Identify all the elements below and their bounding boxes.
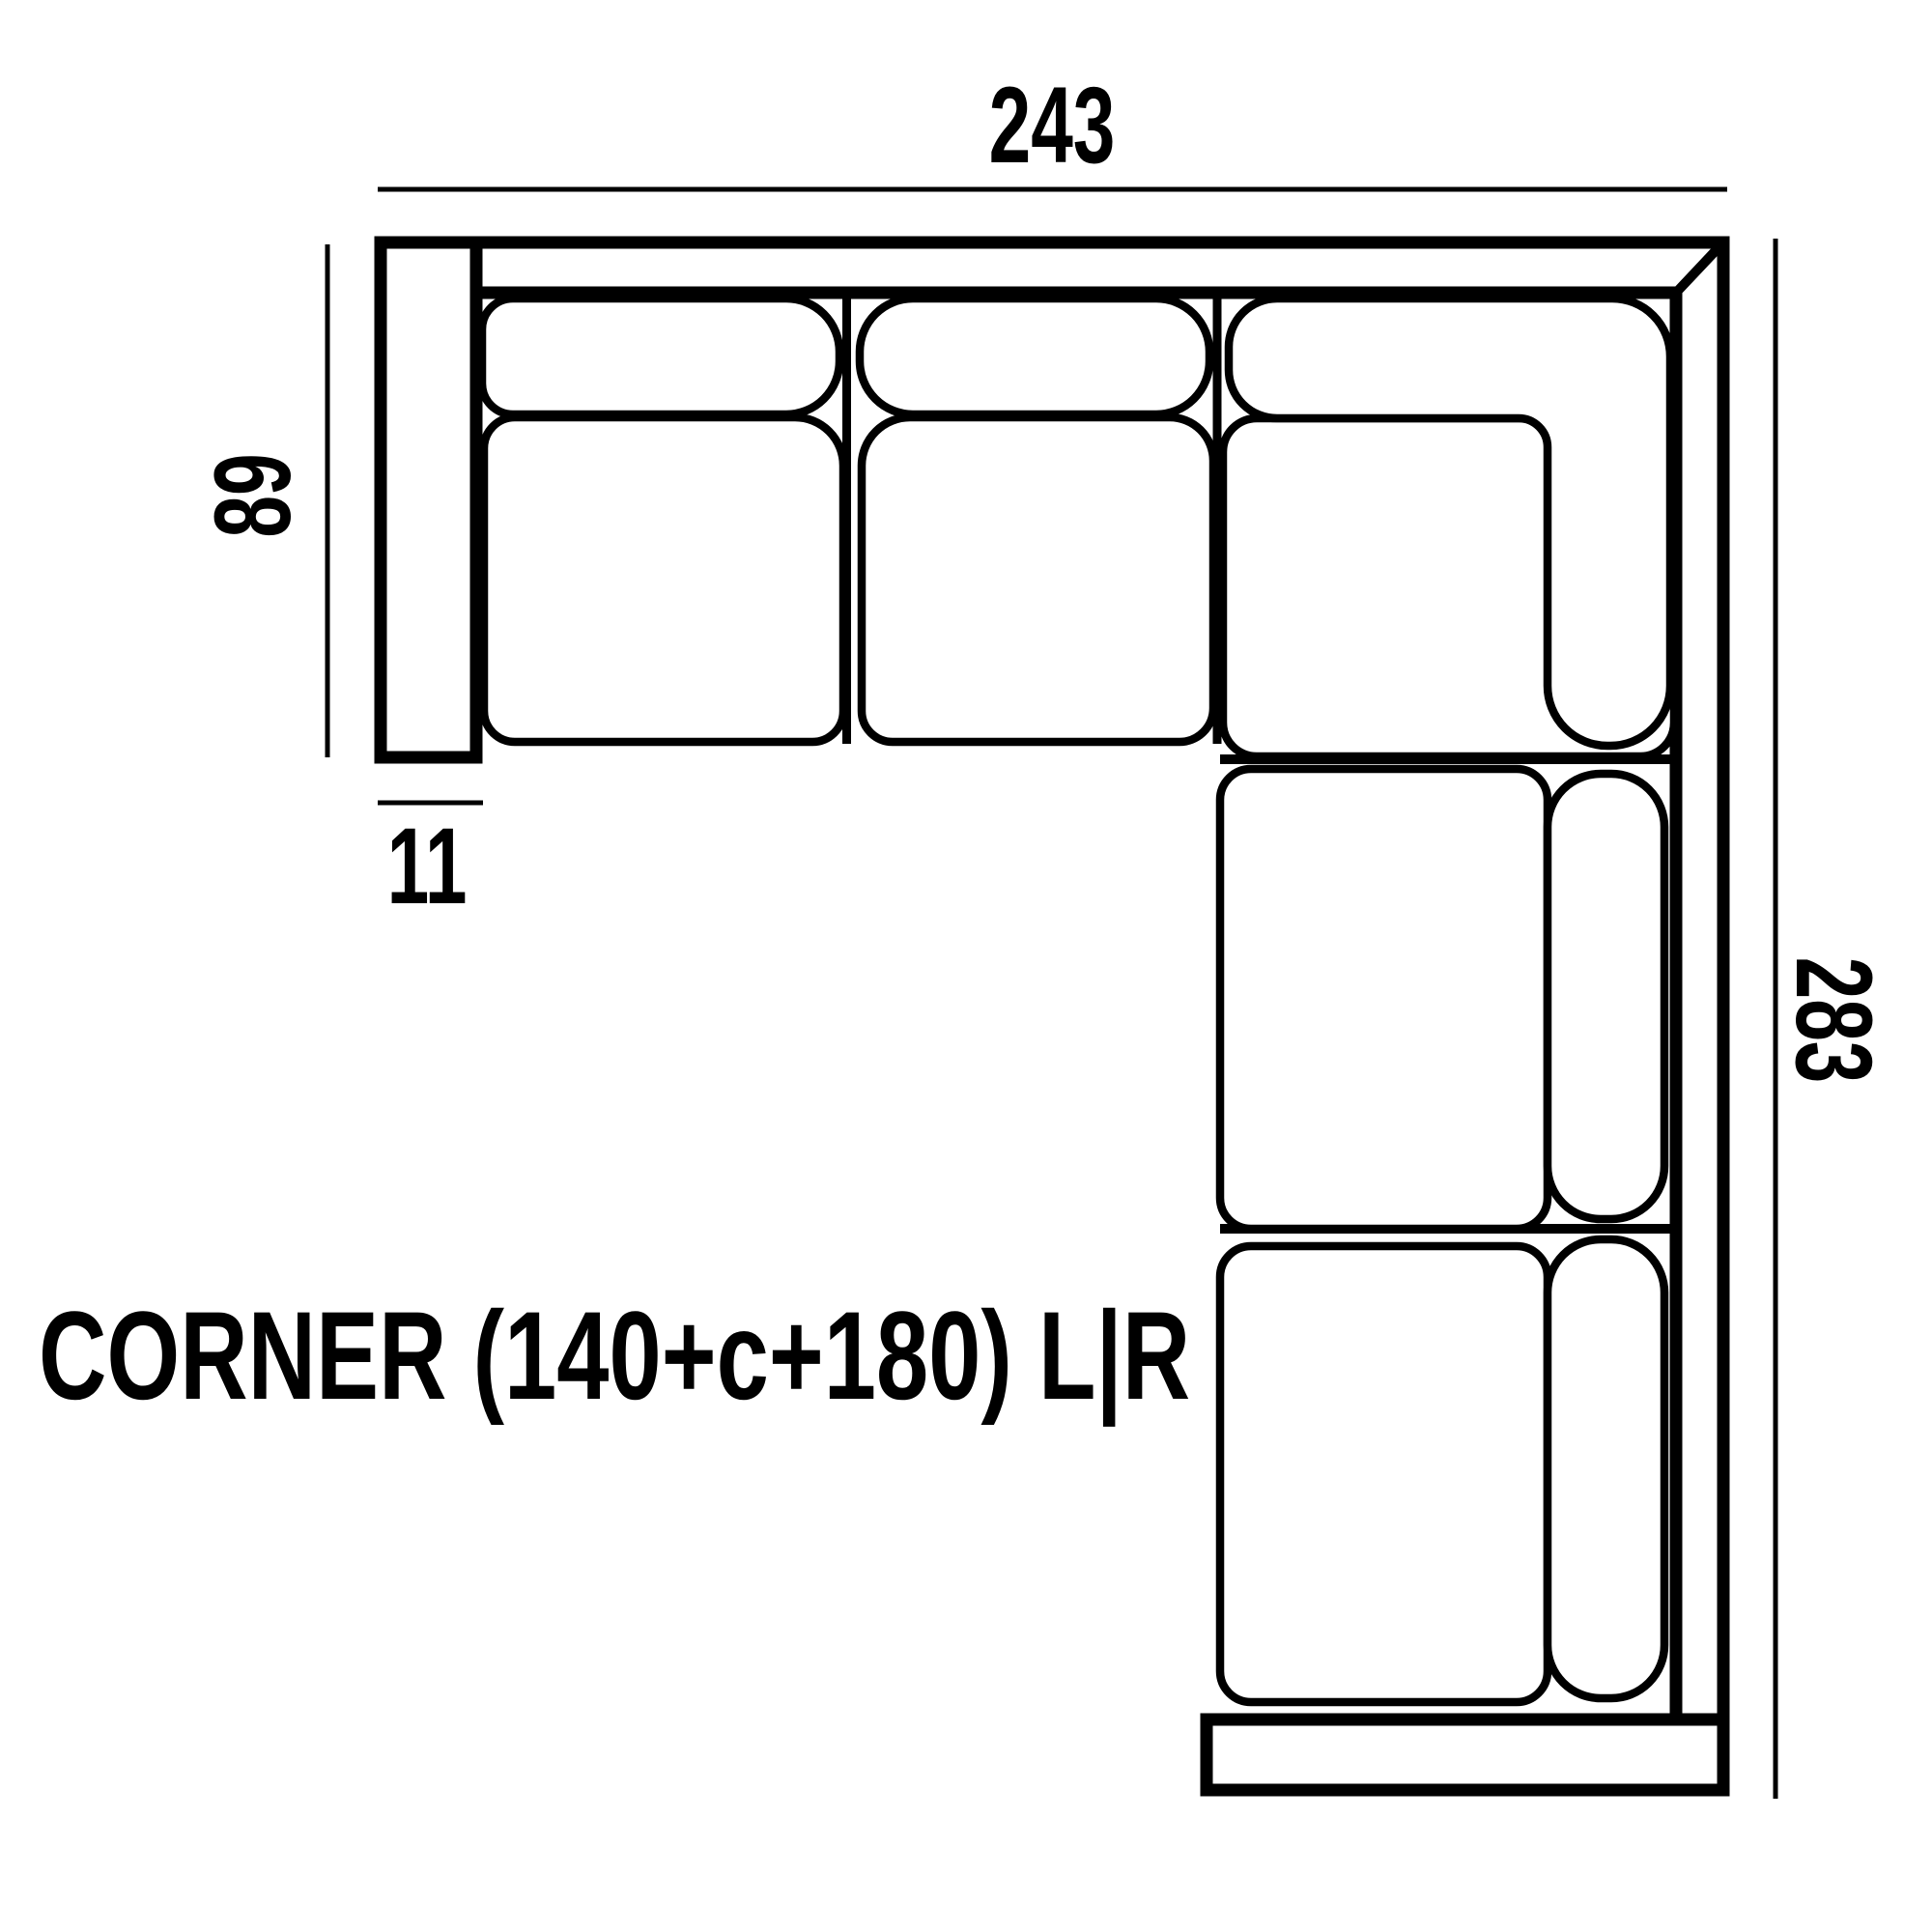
svg-text:283: 283 — [1774, 957, 1894, 1084]
svg-text:CORNER (140+c+180) L|R: CORNER (140+c+180) L|R — [39, 1286, 1190, 1428]
svg-text:243: 243 — [989, 65, 1116, 185]
svg-text:11: 11 — [387, 806, 468, 926]
svg-text:89: 89 — [192, 453, 313, 537]
